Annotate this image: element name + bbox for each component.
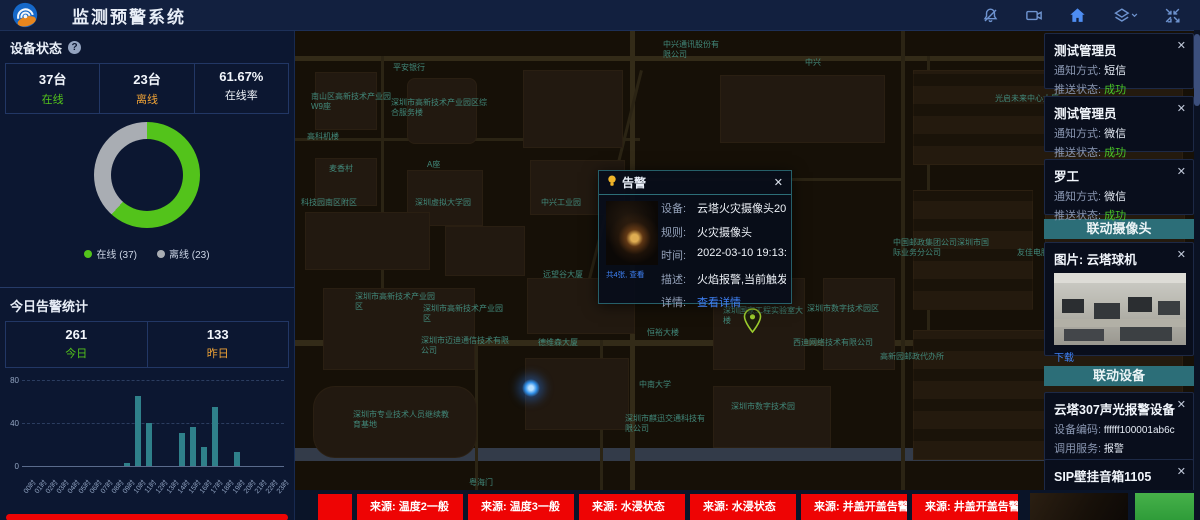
fullscreen-icon[interactable] [1163, 6, 1182, 25]
notification-status: 推送状态: 成功 [1054, 144, 1184, 160]
device-location-marker[interactable] [522, 379, 540, 397]
alert-source-tile[interactable]: 来源: 并盖开盖告警 [801, 494, 907, 520]
notification-name: 测试管理员 [1054, 40, 1184, 59]
y-axis-label: 0 [15, 462, 19, 471]
today-bar-xlabels: 00时01时02时03时04时05时06时07时08时09时10时11时12时1… [22, 468, 284, 498]
map-building [445, 226, 525, 276]
alert-source-tile[interactable]: 来源: 水浸状态 [579, 494, 685, 520]
map-label: 深圳市迈迪通信技术有限公司 [421, 336, 509, 356]
y-axis-label: 80 [10, 376, 19, 385]
bar [212, 407, 218, 466]
field-value: 报警 [1101, 444, 1124, 455]
legend-item: 离线 (23) [157, 246, 210, 261]
map-label: 深圳市数字技术园 [731, 402, 795, 412]
stat-cell: 261今日 [6, 322, 147, 367]
photo-detail [1094, 303, 1120, 319]
scrollbar-thumb[interactable] [1194, 34, 1200, 106]
alarm-bulb-icon [607, 175, 617, 190]
field-label: 推送状态: [1054, 84, 1101, 96]
notification-card: ✕测试管理员通知方式: 微信推送状态: 成功 [1044, 96, 1194, 152]
photo-detail [1064, 329, 1104, 341]
map-label: 科技园南区附区 [301, 198, 357, 208]
alert-popup: 告警 ✕ 共4张, 查看 设备:云塔火灾摄像头202规则:火灾摄像头时间:202… [598, 170, 792, 304]
popup-field-value: 2022-03-10 19:13:07 [697, 247, 786, 263]
popup-field-row: 描述:火焰报警,当前触发值为... [661, 271, 786, 287]
map-label: 高新园邮政代办所 [880, 352, 944, 362]
map-label: 中南大学 [639, 380, 671, 390]
popup-field-row: 时间:2022-03-10 19:13:07 [661, 247, 786, 263]
stat-label: 在线率 [195, 87, 288, 103]
field-value: 成功 [1101, 84, 1126, 96]
map-label: 德维森大厦 [538, 338, 578, 348]
field-value: 成功 [1101, 147, 1126, 159]
stat-label: 离线 [100, 91, 193, 107]
field-value: ffffff100001ab6c [1101, 425, 1175, 436]
map-label: 深圳虚拟大学园 [415, 198, 471, 208]
device-status-table: 37台在线23台离线61.67%在线率 [5, 63, 289, 114]
close-icon[interactable]: ✕ [1177, 165, 1186, 178]
field-label: 调用服务: [1054, 443, 1101, 455]
notification-status: 推送状态: 成功 [1054, 207, 1184, 223]
device-status-title: 设备状态 ? [0, 30, 294, 63]
legend-dot-icon [84, 250, 92, 258]
close-icon[interactable]: ✕ [1177, 39, 1186, 52]
field-value: 短信 [1101, 65, 1126, 77]
home-icon[interactable] [1068, 6, 1087, 25]
layers-icon[interactable] [1111, 6, 1139, 25]
field-label: 设备编码: [1054, 424, 1101, 436]
stat-cell: 61.67%在线率 [194, 64, 288, 113]
thumbnail-caption-link[interactable]: 共4张, 查看 [606, 269, 644, 280]
notification-card: ✕测试管理员通知方式: 短信推送状态: 成功 [1044, 33, 1194, 89]
close-icon[interactable]: ✕ [1177, 465, 1186, 478]
video-camera-icon[interactable] [1024, 6, 1044, 25]
stat-value: 61.67% [195, 69, 288, 84]
stat-cell: 133昨日 [147, 322, 289, 367]
today-alarm-title: 今日告警统计 [0, 288, 294, 321]
popup-field-row: 设备:云塔火灾摄像头202 [661, 200, 786, 216]
today-alarm-bar-chart: 04080 00时01时02时03时04时05时06时07时08时09时10时1… [6, 380, 288, 498]
bell-icon[interactable] [981, 6, 1000, 25]
video-preview-camera[interactable] [1030, 493, 1128, 520]
bar [179, 433, 185, 466]
map-label: 平安银行 [393, 63, 425, 73]
linked-camera-card: ✕ 图片: 云塔球机 下载 [1044, 242, 1194, 356]
unhandled-progress-bar [6, 514, 288, 520]
photo-detail [1054, 319, 1186, 327]
alert-source-tile[interactable]: 来源: 温度2一般 [357, 494, 463, 520]
map-label: 远望谷大厦 [543, 270, 583, 280]
alert-source-tile[interactable]: 来源: 井盖开盖告警 [912, 494, 1018, 520]
map-label: 深圳市专业技术人员继续教育基地 [353, 410, 449, 430]
monitoring-dashboard: 监测预警系统 [0, 0, 1200, 520]
map-label: 深圳市高新技术产业园区综合服务楼 [391, 98, 487, 118]
popup-field-value: 云塔火灾摄像头202 [697, 200, 786, 216]
download-link[interactable]: 下载 [1054, 349, 1074, 364]
field-label: 通知方式: [1054, 191, 1101, 203]
help-icon[interactable]: ? [68, 41, 81, 54]
legend-item: 在线 (37) [84, 246, 137, 261]
notification-method: 通知方式: 微信 [1054, 188, 1184, 204]
popup-field-label: 时间: [661, 247, 697, 263]
popup-field-label: 规则: [661, 224, 697, 240]
video-preview-greenscreen[interactable] [1135, 493, 1199, 520]
gridline [22, 380, 284, 381]
top-icon-bar [981, 0, 1182, 30]
stat-value: 261 [6, 327, 147, 342]
bar [234, 452, 240, 466]
device-donut-legend: 在线 (37)离线 (23) [0, 246, 294, 261]
popup-field-label: 详情: [661, 294, 697, 310]
map-building [525, 358, 629, 430]
stat-label: 今日 [6, 345, 147, 361]
fire-snapshot-thumbnail[interactable] [606, 201, 658, 265]
bar [124, 463, 130, 466]
map-label: 深圳市数字技术园区 [807, 304, 879, 314]
map-building [523, 70, 623, 148]
stat-label: 在线 [6, 91, 99, 107]
view-detail-link[interactable]: 查看详情 [697, 294, 741, 310]
alert-popup-title: 告警 [622, 174, 646, 191]
bar [146, 423, 152, 466]
map-label: 中兴通讯股份有限公司 [663, 40, 725, 60]
popup-field-value: 火焰报警,当前触发值为... [697, 271, 786, 287]
field-value: 成功 [1101, 210, 1126, 222]
stat-value: 37台 [6, 69, 99, 88]
popup-field-label: 描述: [661, 271, 697, 287]
popup-field-label: 设备: [661, 200, 697, 216]
stat-value: 23台 [100, 69, 193, 88]
device-field: 调用服务: 报警 [1054, 440, 1184, 456]
stat-cell: 37台在线 [6, 64, 99, 113]
alert-source-tile[interactable]: 来源: 水浸状态 [690, 494, 796, 520]
popup-field-row: 规则:火灾摄像头 [661, 224, 786, 240]
stat-cell: 23台离线 [99, 64, 193, 113]
device-field: 设备编码: ffffff100001ab6c [1054, 421, 1184, 437]
map-label: 麦香村 [329, 164, 353, 174]
notification-method: 通知方式: 短信 [1054, 62, 1184, 78]
close-icon[interactable]: ✕ [1177, 102, 1186, 115]
field-label: 推送状态: [1054, 210, 1101, 222]
linked-devices-header[interactable]: 联动设备 [1044, 366, 1194, 386]
camera-card-title: 图片: 云塔球机 [1054, 249, 1184, 268]
y-axis-label: 40 [10, 419, 19, 428]
map-building [720, 75, 885, 143]
device-name: 云塔307声光报警设备 [1054, 399, 1184, 418]
device-name: SIP壁挂音箱1105 [1054, 466, 1184, 485]
map-label: 深圳市麒迅交通科技有限公司 [625, 414, 709, 434]
notification-status: 推送状态: 成功 [1054, 81, 1184, 97]
close-icon[interactable]: ✕ [1177, 398, 1186, 411]
close-icon[interactable]: ✕ [1177, 248, 1186, 261]
field-value: 微信 [1101, 191, 1126, 203]
photo-detail [1062, 299, 1084, 313]
alert-source-tile[interactable]: 来源: 温度3一般 [468, 494, 574, 520]
bar [190, 427, 196, 466]
map-label: 西迪网络技术有限公司 [793, 338, 873, 348]
photo-detail [1128, 297, 1152, 312]
gridline [22, 423, 284, 424]
map-label: 中兴工业园 [541, 198, 581, 208]
map-building [713, 386, 831, 448]
photo-detail [1158, 301, 1180, 315]
field-value: 微信 [1101, 128, 1126, 140]
notification-method: 通知方式: 微信 [1054, 125, 1184, 141]
legend-dot-icon [157, 250, 165, 258]
photo-detail [1054, 273, 1186, 283]
photo-detail [1120, 327, 1172, 341]
map-label: 高科机楼 [307, 132, 339, 142]
map-label: 中兴 [805, 58, 821, 68]
page-title: 监测预警系统 [72, 3, 186, 28]
map-road [901, 30, 905, 490]
field-label: 通知方式: [1054, 128, 1101, 140]
map-label: A座 [427, 160, 440, 170]
map-label: 中国邮政集团公司深圳市国际业务分公司 [893, 238, 989, 258]
map-label: 南山区高新技术产业园W9座 [311, 92, 395, 112]
device-status-title-text: 设备状态 [10, 38, 62, 57]
map-building [305, 212, 430, 270]
alert-source-tile-partial[interactable] [318, 494, 352, 520]
right-panel: 联动摄像头 ✕ 图片: 云塔球机 下载 联动设备 ✕测试管理员通知方式: 短信推… [1044, 30, 1194, 490]
right-scrollbar [1194, 30, 1200, 520]
bar [201, 447, 207, 466]
today-alarm-title-text: 今日告警统计 [10, 296, 88, 315]
today-bar-plot: 04080 [22, 380, 284, 467]
stat-value: 133 [148, 327, 289, 342]
bar [135, 396, 141, 466]
app-logo-icon [12, 1, 40, 29]
field-label: 通知方式: [1054, 65, 1101, 77]
close-icon[interactable]: ✕ [774, 176, 783, 189]
device-donut-wrap [0, 122, 294, 238]
map-label: 恒裕大楼 [647, 328, 679, 338]
top-bar: 监测预警系统 [0, 0, 1200, 31]
device-online-donut-chart [94, 122, 200, 228]
field-label: 推送状态: [1054, 147, 1101, 159]
notification-name: 罗工 [1054, 166, 1184, 185]
alert-popup-header: 告警 ✕ [599, 171, 791, 195]
camera-snapshot[interactable] [1054, 273, 1186, 345]
notification-card: ✕罗工通知方式: 微信推送状态: 成功 [1044, 159, 1194, 215]
map-label: 粤海门 [469, 478, 493, 488]
bottom-bar: 来源: 温度2一般来源: 温度3一般来源: 水浸状态来源: 水浸状态来源: 并盖… [295, 490, 1200, 520]
popup-field-row: 详情:查看详情 [661, 294, 786, 310]
popup-field-value: 火灾摄像头 [697, 224, 752, 240]
today-alarm-table: 261今日133昨日 [5, 321, 289, 368]
left-sidebar: 设备状态 ? 37台在线23台离线61.67%在线率 在线 (37)离线 (23… [0, 30, 295, 520]
map-label: 深圳市高新技术产业园区 [423, 304, 503, 324]
alert-popup-fields: 设备:云塔火灾摄像头202规则:火灾摄像头时间:2022-03-10 19:13… [661, 200, 786, 318]
stat-label: 昨日 [148, 345, 289, 361]
notification-name: 测试管理员 [1054, 103, 1184, 122]
